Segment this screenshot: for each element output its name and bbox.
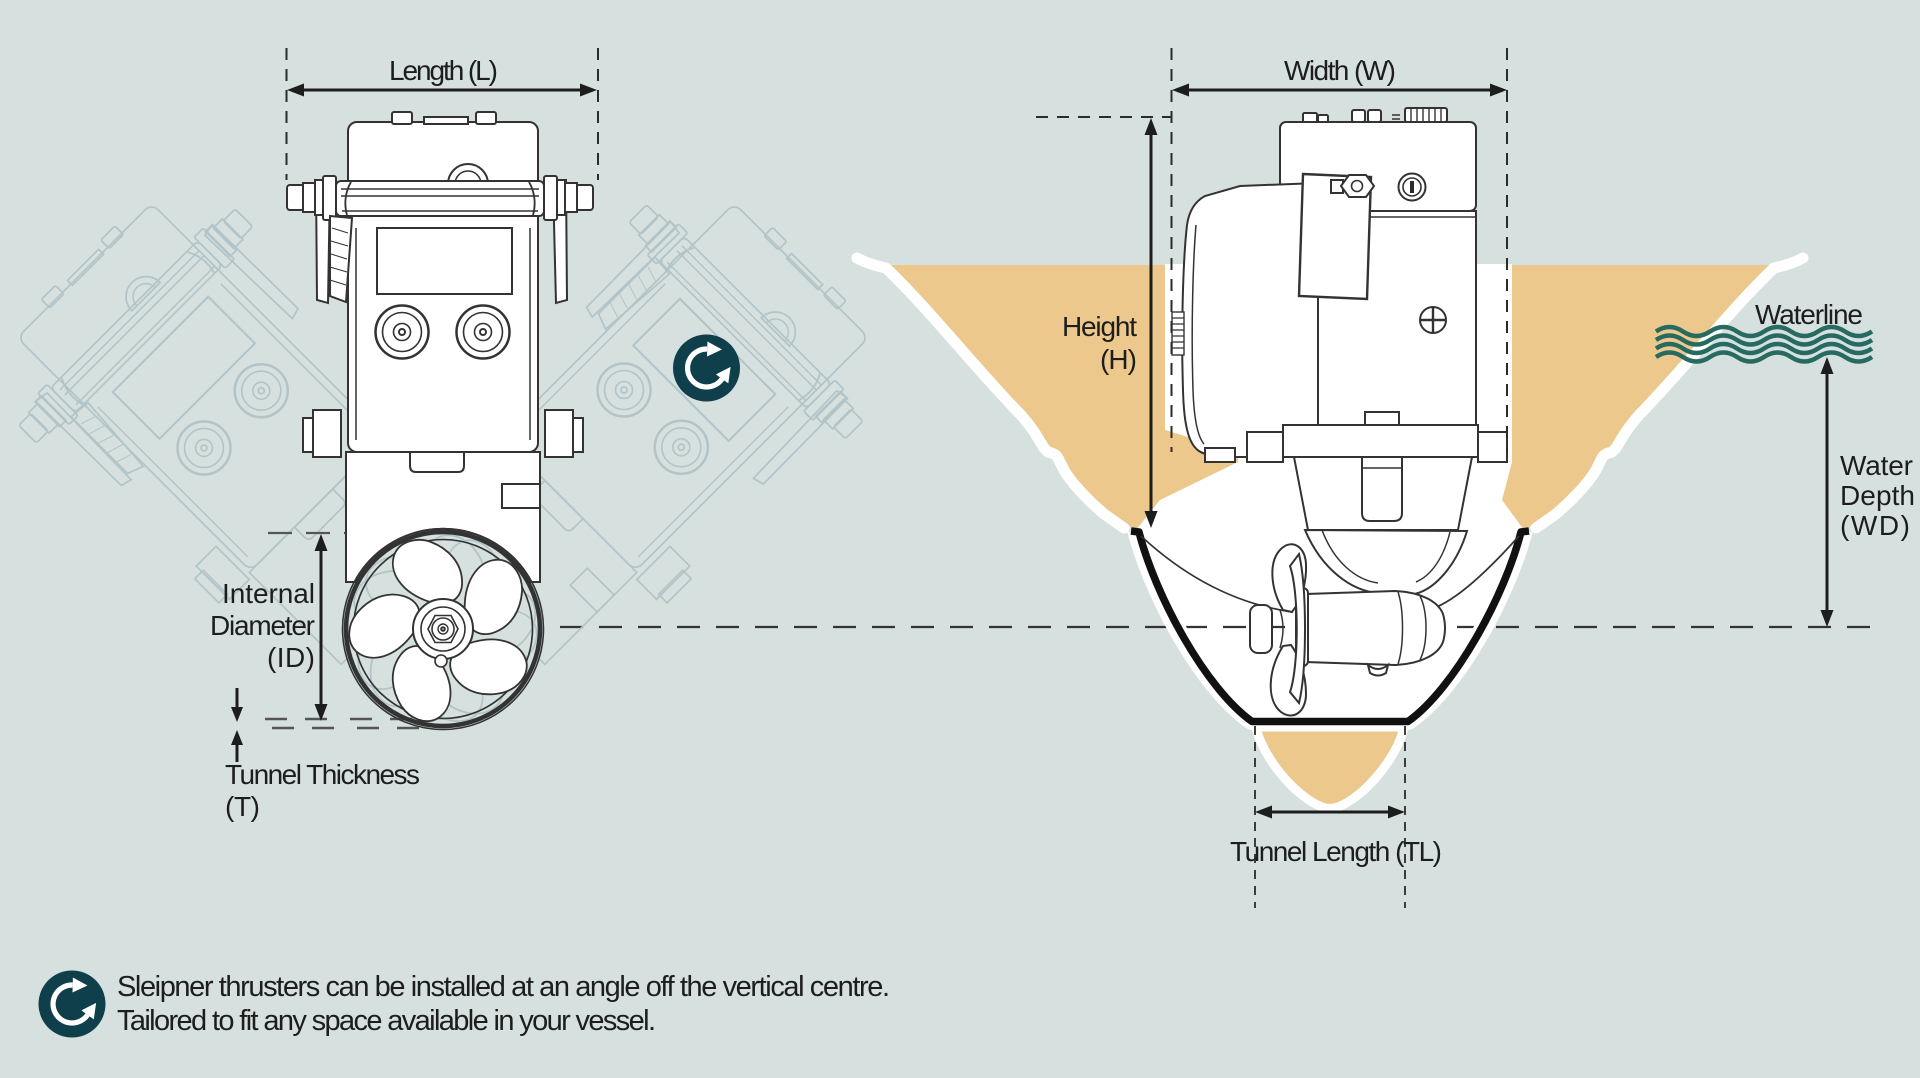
svg-text:Width (W): Width (W) (1284, 55, 1396, 86)
svg-text:(ID): (ID) (267, 642, 315, 673)
svg-text:(H): (H) (1100, 344, 1137, 375)
svg-text:Waterline: Waterline (1755, 299, 1863, 330)
svg-text:Sleipner thrusters can be inst: Sleipner thrusters can be installed at a… (117, 971, 890, 1003)
svg-text:Tunnel Length (TL): Tunnel Length (TL) (1230, 836, 1442, 867)
svg-text:Tunnel Thickness: Tunnel Thickness (225, 759, 420, 790)
svg-text:Length (L): Length (L) (389, 55, 498, 86)
svg-text:Diameter: Diameter (210, 610, 315, 641)
svg-text:Depth: Depth (1840, 480, 1915, 511)
svg-text:Water: Water (1840, 450, 1913, 481)
svg-text:Height: Height (1062, 311, 1137, 342)
svg-text:Internal: Internal (222, 578, 315, 609)
svg-text:(T): (T) (225, 791, 260, 822)
svg-text:Tailored to fit any space avai: Tailored to fit any space available in y… (117, 1005, 656, 1037)
